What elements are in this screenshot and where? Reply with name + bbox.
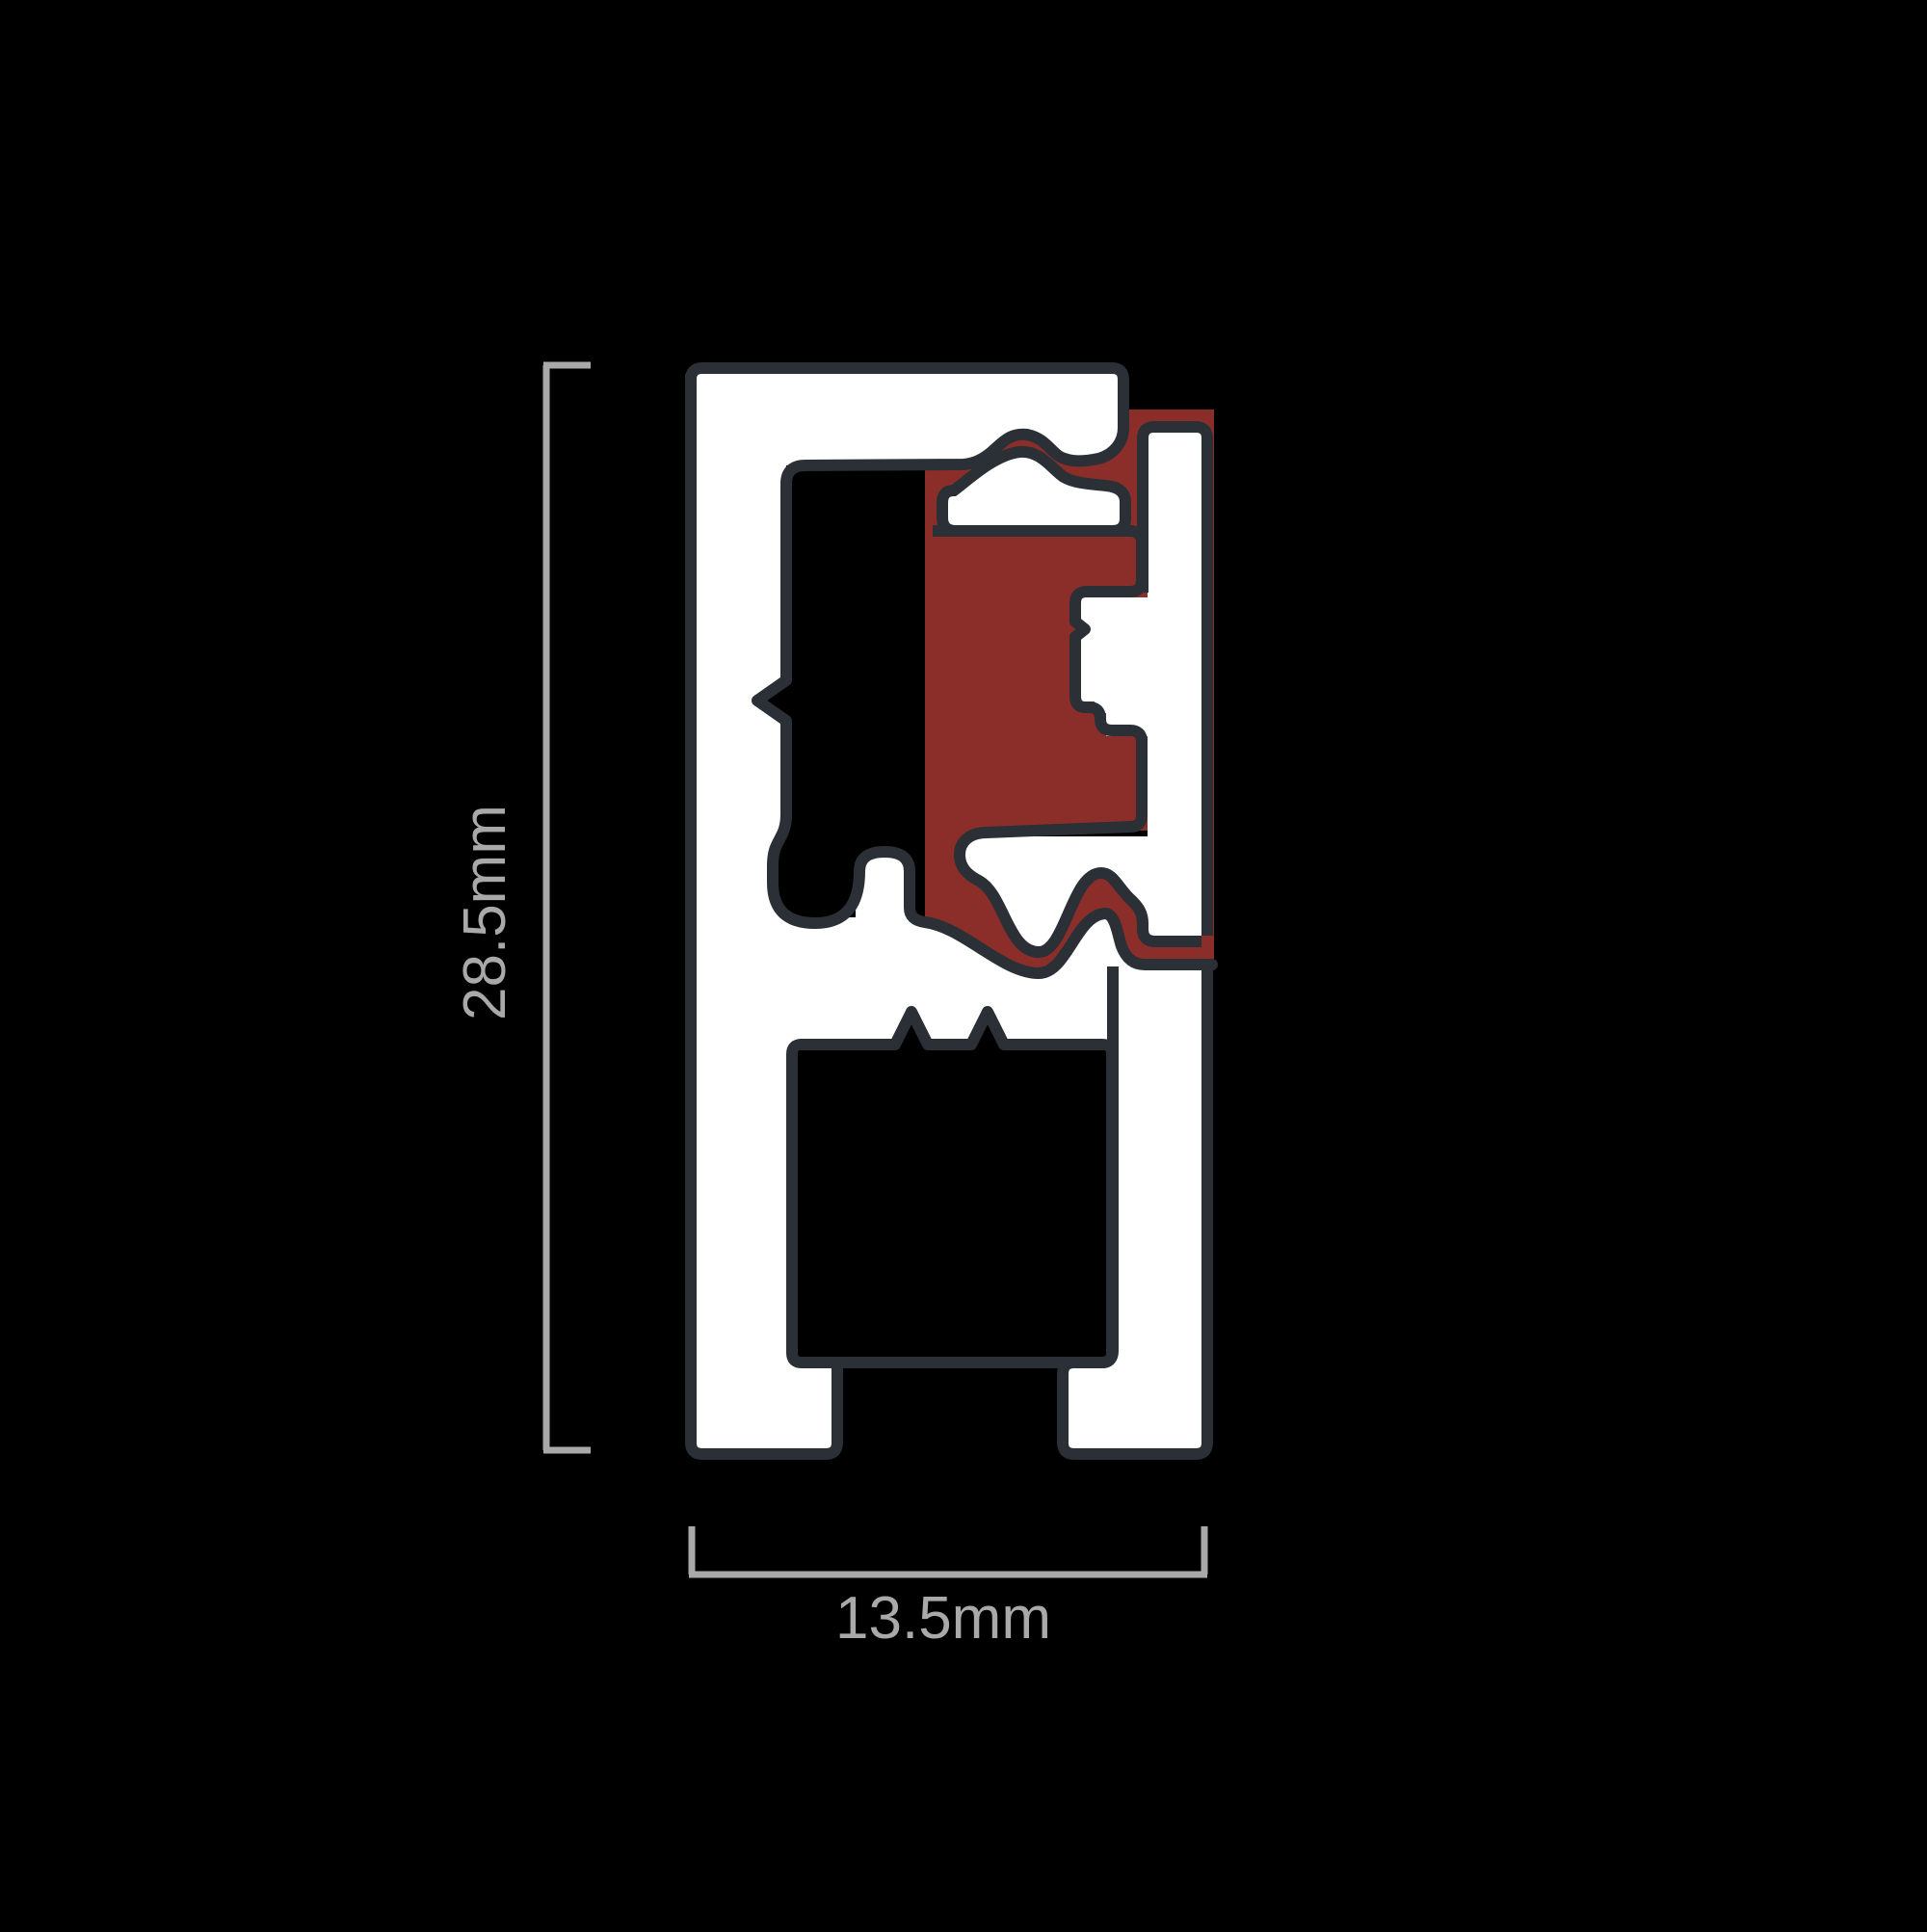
svg-text:13.5mm: 13.5mm: [835, 1585, 1051, 1652]
svg-text:28.5mm: 28.5mm: [452, 805, 518, 1020]
